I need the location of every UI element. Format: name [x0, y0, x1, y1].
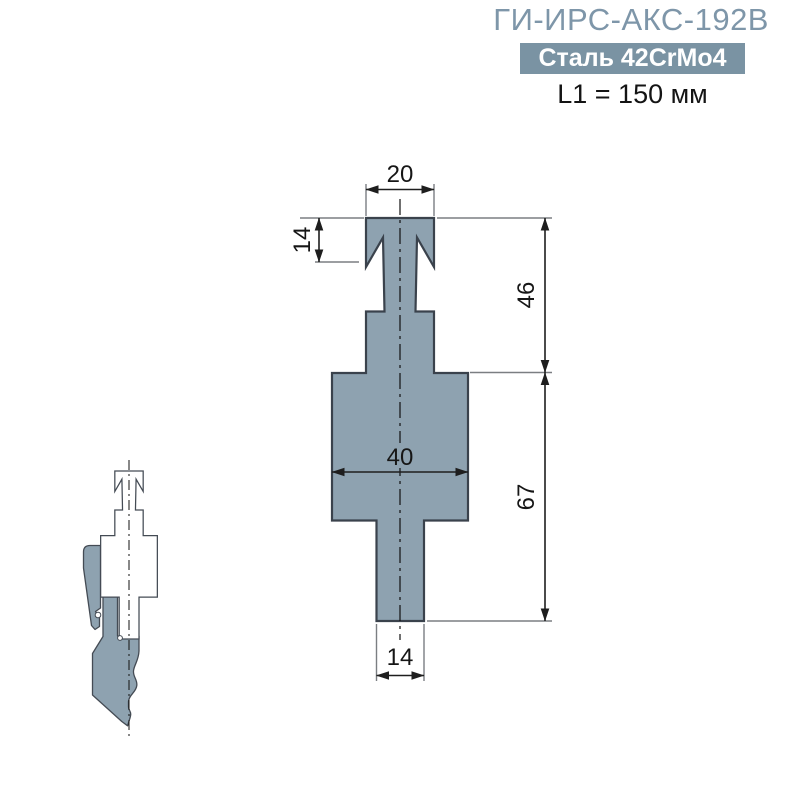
- dim-stem-width: 14: [377, 624, 425, 681]
- stem-corner-hole: [118, 636, 123, 641]
- dim-upper-height: 46: [437, 218, 552, 373]
- technical-drawing-canvas: 20 14 46 67 40: [0, 0, 800, 800]
- main-front-drawing: 20 14 46 67 40: [289, 161, 552, 681]
- dim-label-body-width: 40: [387, 444, 414, 471]
- side-view-drawing: [84, 460, 158, 738]
- dim-label-lower-height: 67: [513, 484, 540, 511]
- dim-label-head-height: 14: [289, 227, 316, 254]
- dim-head-height: 14: [289, 218, 364, 262]
- dim-label-stem-width: 14: [387, 644, 414, 671]
- clamp-pin-hole: [95, 612, 101, 618]
- dim-label-top-width: 20: [387, 161, 414, 188]
- dim-label-upper-height: 46: [513, 282, 540, 309]
